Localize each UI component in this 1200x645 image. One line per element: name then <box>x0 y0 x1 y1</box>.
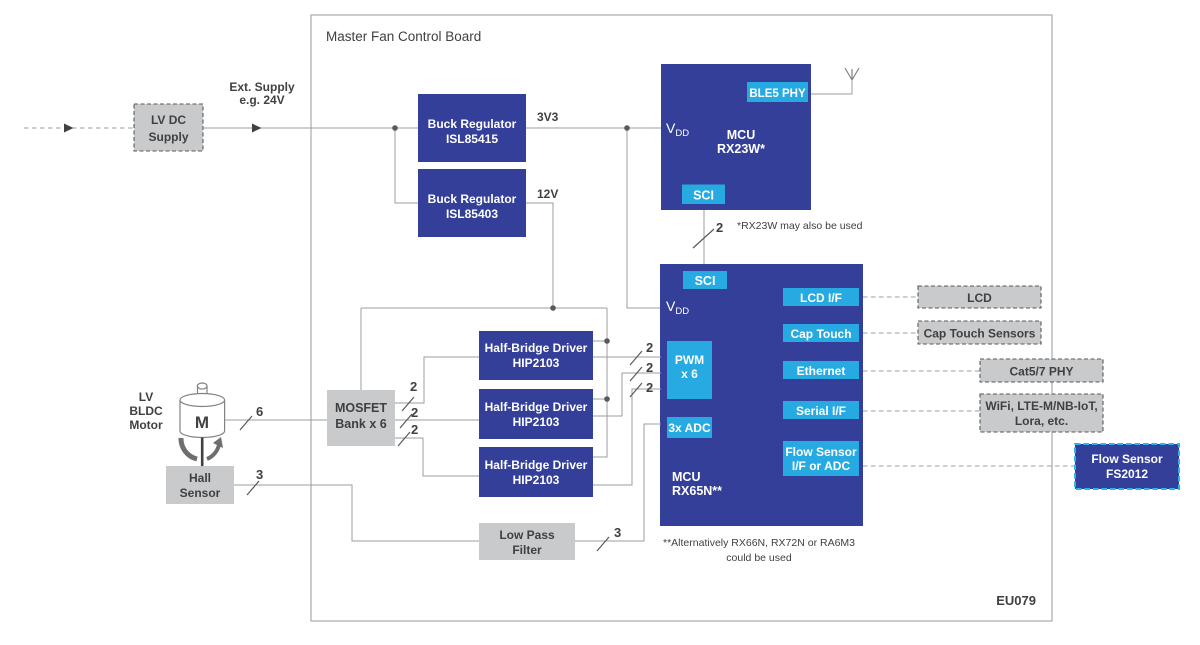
svg-text:ISL85403: ISL85403 <box>446 207 498 221</box>
svg-text:Flow Sensor: Flow Sensor <box>785 445 857 459</box>
svg-text:Cat5/7 PHY: Cat5/7 PHY <box>1009 365 1073 379</box>
svg-text:LCD: LCD <box>967 291 992 305</box>
svg-text:Flow Sensor: Flow Sensor <box>1091 452 1163 466</box>
svg-text:BLE5 PHY: BLE5 PHY <box>749 88 806 100</box>
svg-text:Half-Bridge Driver: Half-Bridge Driver <box>485 400 588 414</box>
svg-text:I/F or ADC: I/F or ADC <box>792 459 851 473</box>
svg-text:Low Pass: Low Pass <box>499 528 555 542</box>
svg-text:MCU: MCU <box>672 470 700 484</box>
svg-text:M: M <box>195 413 209 432</box>
svg-text:Supply: Supply <box>148 130 188 144</box>
svg-text:Cap Touch Sensors: Cap Touch Sensors <box>924 327 1036 341</box>
svg-text:Buck Regulator: Buck Regulator <box>428 117 517 131</box>
svg-text:3: 3 <box>614 525 621 540</box>
svg-text:2: 2 <box>646 380 653 395</box>
svg-text:MOSFET: MOSFET <box>335 401 387 415</box>
svg-text:Half-Bridge Driver: Half-Bridge Driver <box>485 341 588 355</box>
svg-text:2: 2 <box>411 422 418 437</box>
svg-text:2: 2 <box>646 360 653 375</box>
svg-text:*RX23W may also be used: *RX23W may also be used <box>737 220 863 232</box>
svg-text:HIP2103: HIP2103 <box>513 473 560 487</box>
svg-text:Ext. Supply: Ext. Supply <box>229 80 295 94</box>
svg-text:2: 2 <box>716 220 723 235</box>
svg-text:2: 2 <box>410 379 417 394</box>
svg-text:3V3: 3V3 <box>537 110 559 124</box>
svg-text:Half-Bridge Driver: Half-Bridge Driver <box>485 458 588 472</box>
svg-text:Cap Touch: Cap Touch <box>790 327 851 341</box>
svg-text:Bank x 6: Bank x 6 <box>335 417 386 431</box>
svg-text:LCD I/F: LCD I/F <box>800 291 842 305</box>
svg-text:2: 2 <box>646 340 653 355</box>
svg-text:3: 3 <box>256 467 263 482</box>
svg-text:2: 2 <box>411 405 418 420</box>
svg-text:RX65N**: RX65N** <box>672 484 722 498</box>
svg-text:Buck Regulator: Buck Regulator <box>428 192 517 206</box>
svg-text:RX23W*: RX23W* <box>717 142 765 156</box>
svg-text:EU079: EU079 <box>996 593 1036 608</box>
svg-text:x 6: x 6 <box>681 367 698 381</box>
svg-text:**Alternatively RX66N, RX72N o: **Alternatively RX66N, RX72N or RA6M3 <box>663 537 855 549</box>
svg-text:could be used: could be used <box>726 552 792 564</box>
svg-text:LV: LV <box>139 390 153 404</box>
svg-text:Master Fan Control Board: Master Fan Control Board <box>326 29 481 44</box>
svg-text:WiFi, LTE-M/NB-IoT,: WiFi, LTE-M/NB-IoT, <box>985 399 1097 413</box>
svg-text:MCU: MCU <box>727 128 755 142</box>
svg-text:BLDC: BLDC <box>129 404 163 418</box>
svg-text:3x ADC: 3x ADC <box>668 421 711 435</box>
svg-text:Sensor: Sensor <box>180 486 221 500</box>
svg-text:LV DC: LV DC <box>151 113 186 127</box>
svg-text:FS2012: FS2012 <box>1106 467 1148 481</box>
svg-text:HIP2103: HIP2103 <box>513 415 560 429</box>
svg-text:Motor: Motor <box>129 418 163 432</box>
svg-text:Ethernet: Ethernet <box>797 364 846 378</box>
svg-text:Serial I/F: Serial I/F <box>796 404 846 418</box>
svg-text:Filter: Filter <box>512 543 542 557</box>
svg-text:SCI: SCI <box>695 274 716 288</box>
svg-text:Hall: Hall <box>189 471 211 485</box>
svg-text:Lora, etc.: Lora, etc. <box>1015 414 1068 428</box>
svg-text:PWM: PWM <box>675 353 704 367</box>
svg-text:HIP2103: HIP2103 <box>513 356 560 370</box>
svg-text:6: 6 <box>256 404 263 419</box>
svg-text:ISL85415: ISL85415 <box>446 132 498 146</box>
svg-text:12V: 12V <box>537 187 558 201</box>
svg-text:e.g. 24V: e.g. 24V <box>239 93 284 107</box>
svg-text:SCI: SCI <box>693 189 714 203</box>
